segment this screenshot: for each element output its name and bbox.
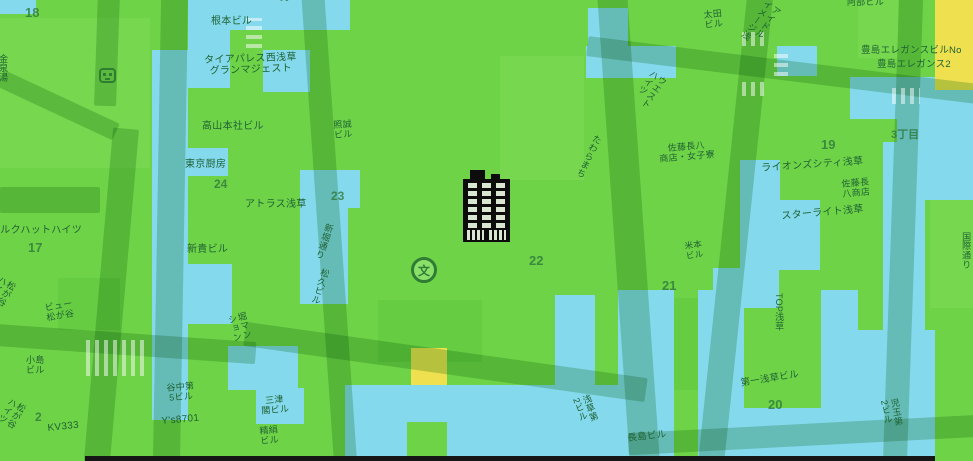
yonemoto-bldg: 米本ビル bbox=[684, 240, 704, 261]
map-canvas[interactable]: 文 18男根本ビルタイアパレス西浅草グランマジェスト高山本社ビル東京厨房24アト… bbox=[0, 0, 973, 461]
kokusai-dori-clipped: 国際通り bbox=[961, 232, 971, 269]
school-icon[interactable]: 文 bbox=[411, 257, 437, 283]
yanaka-dai5-bldg: 谷中第5ビル bbox=[166, 381, 196, 404]
block-2: 2 bbox=[35, 411, 42, 424]
building-window bbox=[496, 191, 505, 196]
building-window bbox=[468, 199, 477, 204]
bottom-edge-bar bbox=[85, 456, 935, 461]
building-storefront bbox=[467, 230, 484, 240]
building-window bbox=[468, 215, 477, 220]
building-storefront bbox=[489, 230, 506, 240]
ys8701: Y's8701 bbox=[161, 413, 200, 427]
road-segment bbox=[94, 0, 120, 106]
crosswalk bbox=[86, 340, 146, 376]
overlay-cell bbox=[500, 56, 584, 180]
building-window bbox=[496, 215, 505, 220]
building-marker[interactable] bbox=[463, 170, 510, 242]
atlas-asakusa: アトラス浅草 bbox=[245, 199, 307, 210]
silkhat-heights: シルクハットハイツ bbox=[0, 225, 82, 236]
nemoto-bldg: 根本ビル bbox=[211, 16, 252, 27]
building-window bbox=[496, 183, 505, 188]
block-21: 21 bbox=[662, 279, 676, 294]
matsugaya-heights-north: 松が谷ハイツ bbox=[0, 274, 17, 308]
tokyo-chubo: 東京厨房 bbox=[185, 159, 226, 170]
road-segment bbox=[0, 187, 100, 213]
building-window bbox=[482, 183, 491, 188]
building-window bbox=[468, 207, 477, 212]
kojima-bldg-line: ビル bbox=[26, 365, 45, 375]
building-window bbox=[496, 199, 505, 204]
kojima-bldg: 小島ビル bbox=[26, 355, 45, 375]
tiara-palace-nishi-asakusa: タイアパレス西浅草グランマジェスト bbox=[204, 52, 297, 78]
shosei-bldg-line: ビル bbox=[334, 129, 353, 140]
overlay-cell bbox=[478, 390, 630, 461]
shinki-bldg: 新貴ビル bbox=[187, 244, 228, 255]
yanaka-dai5-bldg-line: 5ビル bbox=[167, 391, 196, 403]
sato-chohachi-dorm: 佐藤長八商店・女子寮 bbox=[658, 139, 715, 164]
crosswalk bbox=[892, 88, 920, 104]
kinsen-yu: 金泉湯 bbox=[0, 54, 8, 82]
building-window bbox=[482, 191, 491, 196]
kojima-bldg-line: 小島 bbox=[26, 355, 45, 365]
yonemoto-bldg-line: ビル bbox=[685, 249, 704, 261]
block-24: 24 bbox=[214, 178, 227, 191]
daiichi-asakusa-bldg: 第一浅草ビル bbox=[740, 370, 800, 390]
building-window bbox=[468, 183, 477, 188]
block-23: 23 bbox=[331, 190, 344, 203]
crosswalk bbox=[774, 50, 788, 76]
metro-station-icon[interactable] bbox=[99, 68, 116, 83]
clipped-top-label: 男 bbox=[280, 0, 290, 3]
building-window bbox=[468, 191, 477, 196]
takayama-honsha-bldg: 高山本社ビル bbox=[202, 121, 264, 132]
seiken-bldg: 精絹ビル bbox=[259, 424, 279, 446]
building-window bbox=[482, 199, 491, 204]
mitsukaku-bldg: 三津閣ビル bbox=[260, 394, 290, 417]
ota-bldg: 太田ビル bbox=[703, 8, 724, 30]
lions-city-asakusa: ライオンズシティ浅草 bbox=[761, 156, 864, 174]
toshima-elegance-2: 豊島エレガンス2 bbox=[877, 60, 951, 71]
building-window bbox=[468, 223, 477, 228]
building-body bbox=[463, 179, 510, 242]
building-window bbox=[482, 223, 491, 228]
abe-bldg: 阿部ビル bbox=[847, 0, 884, 7]
shosei-bldg: 照誠ビル bbox=[333, 119, 353, 140]
block-18: 18 bbox=[25, 6, 39, 21]
matsugaya-heights-south: 松が谷ハイツ bbox=[0, 396, 27, 430]
toshima-elegance-bldg-no: 豊島エレガンスビルNo bbox=[861, 46, 962, 57]
building-window bbox=[482, 207, 491, 212]
hori-mansion: 堀マンション bbox=[226, 311, 253, 343]
seiken-bldg-line: ビル bbox=[260, 434, 279, 446]
block-22: 22 bbox=[529, 254, 543, 269]
block-17: 17 bbox=[28, 241, 42, 256]
building-window bbox=[482, 215, 491, 220]
top-asakusa: TOP浅草 bbox=[774, 293, 784, 331]
building-window bbox=[496, 207, 505, 212]
chome-3: 3丁目 bbox=[891, 129, 919, 141]
kv333: KV333 bbox=[47, 420, 80, 434]
ota-bldg-line: ビル bbox=[704, 18, 724, 30]
building-window bbox=[496, 223, 505, 228]
block-19: 19 bbox=[821, 138, 835, 153]
sato-chohachi-shop-line: 八商店 bbox=[842, 187, 871, 199]
block-20: 20 bbox=[768, 398, 782, 413]
crosswalk bbox=[742, 82, 768, 96]
sato-chohachi-shop: 佐藤長八商店 bbox=[841, 177, 871, 200]
